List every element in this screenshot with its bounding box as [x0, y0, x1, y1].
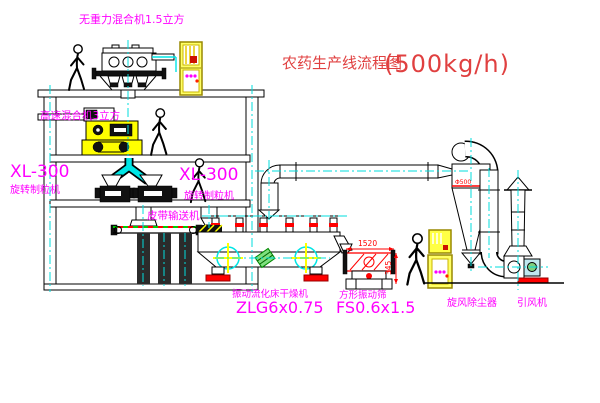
induced-draft-fan [504, 256, 548, 283]
label-granulator-mid: 旋转制粒机 [184, 189, 234, 202]
belt-conveyor [111, 225, 202, 284]
person-near-sieve [407, 234, 424, 285]
label-cyclone: 旋风除尘器 [447, 296, 497, 309]
person-top-platform [69, 45, 84, 90]
label-granulator-left: 旋转制粒机 [10, 183, 60, 196]
page-title-capacity: (500kg/h) [384, 50, 510, 78]
dim-cyclone-dia: Φ500 [455, 179, 471, 186]
diagram-canvas: 无重力混合机1.5立方 农药生产线流程图 (500kg/h) 高速混合机3立方 … [0, 0, 600, 403]
label-high-speed-mixer: 高速混合机3立方 [40, 109, 120, 122]
label-xl300-mid: XL-300 [179, 165, 238, 185]
dim-sieve-length: 1520 [358, 239, 377, 248]
granulator-left [95, 175, 135, 202]
label-belt-conveyor: 皮带输送机 [147, 209, 200, 222]
label-fan: 引风机 [517, 296, 547, 309]
person-second-floor [151, 109, 166, 155]
label-xl300-left: XL-300 [10, 162, 69, 182]
process-flow-diagram: 无重力混合机1.5立方 农药生产线流程图 (500kg/h) 高速混合机3立方 … [0, 0, 600, 403]
label-dryer-model: ZLG6x0.75 [236, 298, 324, 317]
exhaust-duct [259, 162, 452, 219]
dryer-inlet-ports [211, 218, 338, 232]
label-sieve-model: FS0.6x1.5 [336, 298, 415, 317]
fluid-bed-dryer [196, 207, 352, 281]
label-gravity-mixer: 无重力混合机1.5立方 [79, 12, 185, 26]
cyclone-outlet-duct [478, 170, 506, 269]
control-cabinet-right-upper [429, 230, 451, 253]
control-cabinet-top [180, 42, 202, 95]
dim-sieve-height: 345 [384, 260, 393, 275]
